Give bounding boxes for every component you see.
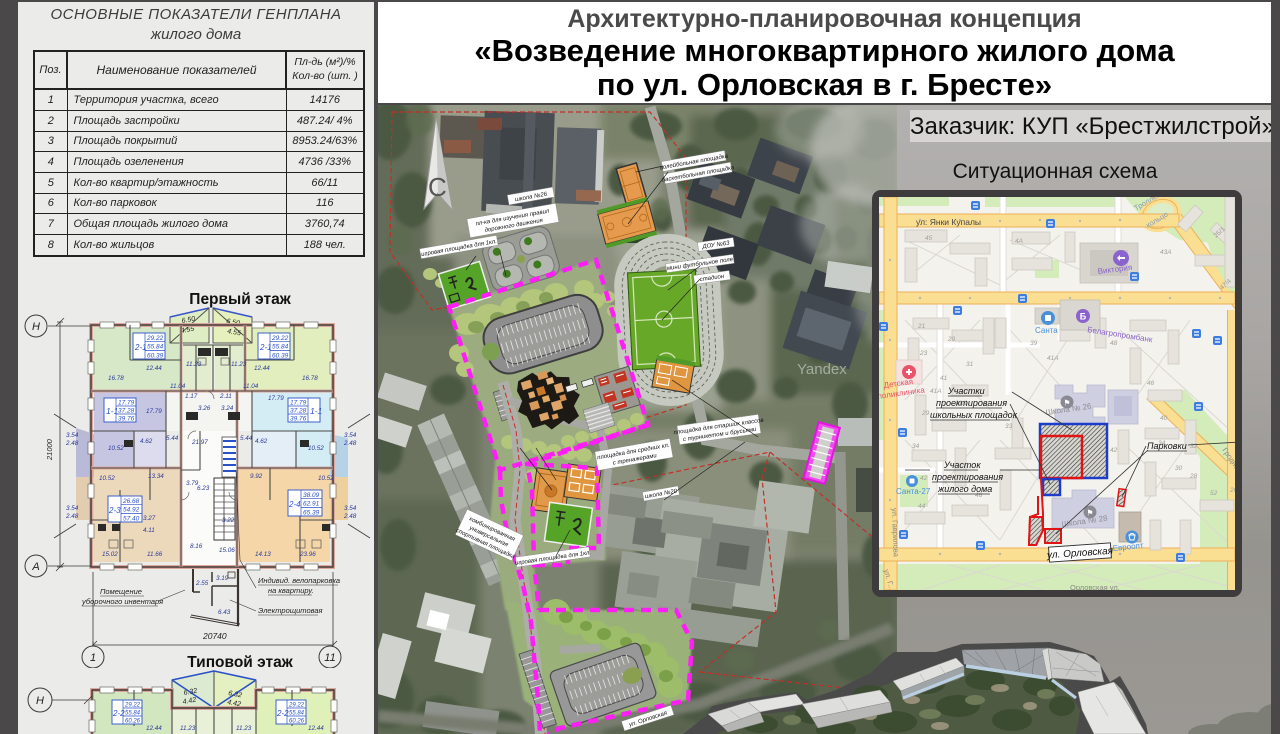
svg-text:2.11: 2.11 — [219, 393, 232, 400]
svg-text:11.23: 11.23 — [186, 361, 202, 368]
svg-text:60.26: 60.26 — [125, 719, 141, 725]
svg-text:2-3: 2-3 — [108, 506, 121, 515]
svg-text:65.39: 65.39 — [303, 510, 320, 517]
svg-text:16.78: 16.78 — [108, 375, 124, 382]
svg-text:5.44: 5.44 — [240, 435, 253, 442]
svg-text:11.04: 11.04 — [243, 383, 259, 390]
svg-text:1-1: 1-1 — [106, 406, 119, 416]
svg-text:62.91: 62.91 — [303, 501, 320, 508]
svg-text:13.34: 13.34 — [148, 473, 164, 480]
svg-text:15.06: 15.06 — [219, 547, 235, 554]
svg-text:12.44: 12.44 — [254, 365, 270, 372]
svg-text:3.24: 3.24 — [221, 405, 234, 412]
svg-text:Электрощитовая: Электрощитовая — [258, 606, 323, 615]
svg-text:Парковки: Парковки — [1147, 441, 1187, 451]
svg-text:55.84: 55.84 — [272, 344, 289, 351]
svg-text:Индивид. велопарковка: Индивид. велопарковка — [258, 576, 340, 585]
svg-text:55.84: 55.84 — [147, 344, 164, 351]
svg-text:12.44: 12.44 — [146, 725, 162, 732]
svg-text:Санта: Санта — [1035, 326, 1058, 335]
svg-text:38.09: 38.09 — [303, 492, 320, 499]
svg-text:Н: Н — [32, 321, 40, 333]
svg-text:23.96: 23.96 — [299, 551, 316, 558]
svg-text:41A: 41A — [930, 388, 942, 395]
svg-text:11.66: 11.66 — [147, 551, 163, 558]
svg-text:Б: Б — [1080, 312, 1087, 322]
svg-text:17.79: 17.79 — [268, 395, 284, 402]
svg-text:37.28: 37.28 — [118, 408, 135, 415]
svg-text:3.19: 3.19 — [216, 575, 229, 582]
svg-text:10.52: 10.52 — [99, 475, 115, 482]
svg-text:Санта-27: Санта-27 — [896, 487, 931, 496]
svg-text:41A: 41A — [1047, 355, 1059, 362]
svg-text:15.02: 15.02 — [102, 551, 118, 558]
svg-text:2-4: 2-4 — [288, 500, 301, 509]
svg-text:2-1: 2-1 — [259, 343, 272, 352]
svg-text:проектирования: проектирования — [936, 398, 1007, 408]
svg-text:3.54: 3.54 — [66, 432, 79, 439]
svg-text:45: 45 — [925, 235, 933, 242]
svg-text:21: 21 — [917, 323, 926, 330]
svg-text:29.22: 29.22 — [271, 335, 289, 342]
svg-text:12.44: 12.44 — [146, 365, 162, 372]
svg-text:Помещение: Помещение — [100, 587, 142, 596]
svg-text:60.26: 60.26 — [289, 719, 305, 725]
svg-text:ул. Гаврилова: ул. Гаврилова — [890, 508, 901, 558]
svg-text:29.22: 29.22 — [146, 335, 164, 342]
svg-text:11.04: 11.04 — [170, 383, 186, 390]
svg-text:57.40: 57.40 — [123, 516, 140, 523]
svg-text:16.78: 16.78 — [302, 375, 318, 382]
svg-text:10.52: 10.52 — [308, 445, 324, 452]
svg-text:29.22: 29.22 — [288, 703, 305, 709]
svg-text:39.76: 39.76 — [118, 416, 135, 423]
svg-text:11.23: 11.23 — [180, 725, 196, 732]
svg-text:1-1: 1-1 — [310, 406, 323, 416]
svg-text:10.52: 10.52 — [318, 475, 334, 482]
svg-text:29.22: 29.22 — [124, 703, 141, 709]
svg-text:3.54: 3.54 — [344, 505, 357, 512]
svg-text:31: 31 — [966, 361, 974, 368]
svg-text:39.76: 39.76 — [290, 416, 307, 423]
svg-text:А: А — [31, 561, 39, 573]
svg-text:55.84: 55.84 — [125, 711, 141, 717]
svg-text:34: 34 — [912, 443, 920, 450]
svg-text:школьных площадок: школьных площадок — [930, 410, 1018, 420]
svg-text:2.48: 2.48 — [343, 440, 357, 447]
svg-text:52: 52 — [1210, 490, 1218, 497]
svg-text:на квартиру.: на квартиру. — [268, 586, 314, 595]
svg-text:43A: 43A — [1160, 249, 1172, 256]
svg-text:2.55: 2.55 — [195, 580, 209, 587]
svg-text:1: 1 — [90, 652, 96, 664]
svg-text:44: 44 — [918, 503, 926, 510]
svg-text:12.44: 12.44 — [308, 725, 324, 732]
svg-text:жилого дома: жилого дома — [937, 484, 992, 494]
svg-text:ул: Янки Купалы: ул: Янки Купалы — [916, 217, 981, 227]
svg-text:41: 41 — [940, 375, 948, 382]
svg-text:40: 40 — [1160, 415, 1168, 422]
svg-text:1.17: 1.17 — [185, 393, 198, 400]
svg-text:60.39: 60.39 — [147, 353, 164, 360]
svg-text:2-2: 2-2 — [276, 709, 289, 718]
svg-text:54.92: 54.92 — [123, 507, 140, 514]
svg-text:17.79: 17.79 — [290, 400, 307, 407]
svg-text:23: 23 — [919, 350, 928, 357]
svg-text:С: С — [428, 172, 447, 202]
svg-text:Участки: Участки — [947, 386, 985, 396]
svg-text:уборочного инвентаря: уборочного инвентаря — [81, 597, 163, 606]
svg-text:55.84: 55.84 — [289, 711, 305, 717]
svg-text:3.27: 3.27 — [143, 515, 156, 522]
svg-text:3.22: 3.22 — [222, 517, 235, 524]
svg-text:5.44: 5.44 — [166, 435, 179, 442]
svg-text:Yandex: Yandex — [797, 361, 847, 378]
svg-text:2-1: 2-1 — [134, 343, 147, 352]
svg-text:60.39: 60.39 — [272, 353, 289, 360]
svg-text:2.48: 2.48 — [343, 513, 357, 520]
svg-text:21000: 21000 — [45, 438, 54, 461]
svg-text:33: 33 — [1005, 423, 1013, 430]
svg-text:29: 29 — [921, 410, 930, 417]
svg-text:17.79: 17.79 — [146, 408, 162, 415]
svg-text:37.28: 37.28 — [290, 408, 307, 415]
svg-text:4.11: 4.11 — [143, 527, 155, 534]
svg-text:28: 28 — [1189, 473, 1198, 480]
svg-text:17.79: 17.79 — [118, 400, 135, 407]
svg-text:2.48: 2.48 — [65, 440, 79, 447]
svg-text:проектирования: проектирования — [932, 472, 1003, 482]
svg-text:10.52: 10.52 — [108, 445, 124, 452]
svg-text:3.54: 3.54 — [344, 432, 357, 439]
svg-text:46: 46 — [1147, 380, 1155, 387]
svg-text:20740: 20740 — [202, 631, 227, 641]
svg-text:11.23: 11.23 — [236, 725, 252, 732]
svg-text:6.23: 6.23 — [197, 485, 210, 492]
svg-text:4A: 4A — [1015, 238, 1023, 245]
svg-text:Участок: Участок — [943, 460, 981, 470]
svg-text:6.43: 6.43 — [218, 609, 231, 616]
svg-text:42: 42 — [1110, 447, 1118, 454]
svg-text:2.48: 2.48 — [65, 513, 79, 520]
svg-text:Н: Н — [36, 695, 44, 707]
svg-text:26.68: 26.68 — [122, 498, 140, 505]
svg-text:9.92: 9.92 — [250, 473, 263, 480]
svg-text:4.62: 4.62 — [255, 438, 268, 445]
svg-text:32: 32 — [1190, 443, 1198, 450]
svg-text:21.97: 21.97 — [191, 439, 208, 446]
svg-text:4.62: 4.62 — [140, 438, 153, 445]
svg-text:2-2: 2-2 — [112, 709, 125, 718]
svg-text:42: 42 — [920, 475, 928, 482]
svg-text:8.16: 8.16 — [190, 543, 203, 550]
svg-text:30: 30 — [1175, 465, 1183, 472]
svg-text:3.54: 3.54 — [66, 505, 79, 512]
svg-text:48: 48 — [1110, 340, 1118, 347]
svg-text:29: 29 — [947, 336, 956, 343]
svg-text:14.13: 14.13 — [255, 551, 271, 558]
svg-text:3.26: 3.26 — [198, 405, 211, 412]
svg-text:39: 39 — [1030, 340, 1038, 347]
svg-text:11.23: 11.23 — [231, 361, 247, 368]
